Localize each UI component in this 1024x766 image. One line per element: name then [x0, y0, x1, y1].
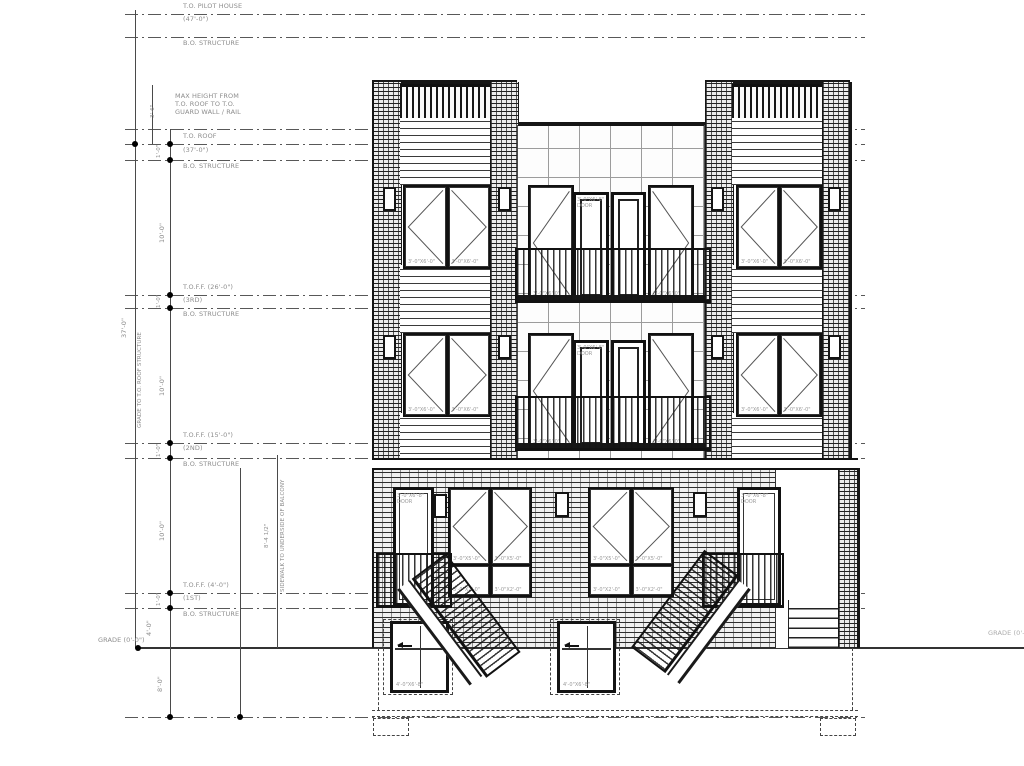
sconce-light: [693, 492, 707, 517]
dim-plenum: 1'-0": [156, 592, 162, 606]
datum-line-bo-footing: [125, 717, 865, 718]
dim-foundation: 4'-0": [145, 620, 153, 636]
basement-door-right: 4'-0"X6'-8": [557, 621, 616, 693]
label-bo-structure: B.O. STRUCTURE: [183, 163, 239, 171]
label-grade-left: GRADE (0'-0"): [98, 637, 145, 645]
door-rail: [562, 648, 611, 650]
casement-left: 3'-0"X5'-0": [590, 489, 630, 564]
casement-right: 3'-0"X6'-0": [781, 335, 821, 415]
dim-guard-height: 3'-6": [150, 104, 156, 118]
sconce-light: [828, 335, 841, 359]
swing-arrow-icon: [398, 645, 412, 647]
door-mullion: [420, 626, 422, 688]
side-steps: [788, 600, 839, 648]
dim-sidewalk-note: SIDEWALK TO UNDERSIDE OF BALCONY: [280, 479, 286, 592]
window-size-label: 3'-0"X5'-0": [636, 556, 663, 562]
foundation-outline: [372, 716, 858, 717]
casement-left: 3'-0"X6'-0": [405, 335, 446, 415]
door-size-label: 4'-0"X6'-8": [563, 682, 590, 688]
balcony-railing-3rd: [515, 248, 711, 303]
label-toff-3rd: T.O.F.F. (26'-0"): [183, 284, 233, 292]
sconce-light: [498, 335, 511, 359]
first-floor-transom-right: 3'-0"X2'-0" 3'-0"X2'-0": [588, 564, 674, 597]
dim-plenum: 1'-0": [156, 443, 162, 457]
window-size-label: 3'-0"X5'-0": [593, 556, 620, 562]
datum-line-bo-structure-roof: [125, 37, 865, 38]
door-size-label: 4'-0"X6'-8": [396, 682, 423, 688]
window-size-label: 3'-0"X2'-0": [593, 587, 620, 593]
window-size-label: 3'-0"X6'-0": [408, 407, 435, 413]
elevation-drawing: T.O. PILOT HOUSE (47'-0") B.O. STRUCTURE…: [0, 0, 1024, 766]
dim-plenum: 1'-0": [156, 294, 162, 308]
dim-marker: [167, 590, 173, 596]
siding-panel: [400, 265, 490, 333]
label-toff-1st-floor: (1ST): [183, 595, 201, 603]
building-edge-right-upper: [849, 82, 851, 468]
brick-pier: [372, 82, 402, 468]
casement-left: 3'-0"X6'-0": [738, 335, 778, 415]
door-word: DOOR: [577, 203, 604, 209]
transom: 3'-0"X2'-0": [492, 566, 531, 595]
dim-marker: [167, 455, 173, 461]
label-toff-2nd-floor: (2ND): [183, 445, 203, 453]
sconce-light: [711, 335, 724, 359]
dim-below-grade: 8'-0": [156, 676, 164, 692]
door-size-label: 3'-0"X6'-8" DOOR: [577, 197, 604, 209]
dim-marker: [167, 440, 173, 446]
door-word: DOOR: [397, 499, 424, 505]
transom: 3'-0"X2'-0": [590, 566, 630, 595]
label-toff-1st: T.O.F.F. (4'-0"): [183, 582, 229, 590]
window-size-label: 3'-0"X6'-0": [452, 407, 479, 413]
foundation-outline: [372, 710, 858, 711]
sconce-light: [828, 187, 841, 211]
casement-left: 3'-0"X6'-0": [405, 187, 446, 267]
foundation-wall-dashed: [378, 648, 379, 710]
sconce-light: [434, 494, 447, 518]
siding-panel: [732, 265, 822, 333]
center-parapet: [517, 122, 705, 126]
casement-right: 3'-0"X6'-0": [449, 187, 490, 267]
dim-line-sidewalk: [277, 455, 278, 648]
window-size-label: 3'-0"X6'-0": [408, 259, 435, 265]
label-to-pilot-house-elev: (47'-0"): [183, 16, 208, 24]
dim-line-overall: [135, 10, 136, 648]
door-word: DOOR: [741, 499, 768, 505]
label-to-roof: T.O. ROOF: [183, 133, 217, 141]
sconce-light: [555, 492, 569, 517]
door-rail: [395, 648, 444, 650]
label-grade-right: GRADE (0'-0"): [988, 630, 1024, 638]
dim-marker: [167, 157, 173, 163]
dim-marker: [167, 141, 173, 147]
tower-window-3rd-right: 3'-0"X6'-0" 3'-0"X6'-0": [736, 185, 822, 269]
dim-marker: [167, 714, 173, 720]
first-floor-window-left: 3'-0"X5'-0" 3'-0"X5'-0": [448, 487, 532, 566]
foundation-wall-dashed: [852, 648, 853, 710]
note-max-height-3: GUARD WALL / RAIL: [175, 109, 241, 117]
swing-arrow-icon: [565, 645, 579, 647]
dim-marker: [135, 645, 141, 651]
dim-floor-height-1: 10'-0": [158, 521, 166, 541]
siding-panel: [400, 118, 490, 185]
casement-right: 3'-0"X5'-0": [633, 489, 673, 564]
transom: 3'-0"X2'-0": [633, 566, 673, 595]
label-bo-structure: B.O. STRUCTURE: [183, 461, 239, 469]
casement-left: 3'-0"X6'-0": [738, 187, 778, 267]
casement-right: 3'-0"X6'-0": [449, 335, 490, 415]
label-bo-structure: B.O. STRUCTURE: [183, 611, 239, 619]
footing-outline-right: [820, 718, 856, 736]
tower-window-3rd-left: 3'-0"X6'-0" 3'-0"X6'-0": [403, 185, 491, 269]
label-toff-3rd-floor: (3RD): [183, 297, 202, 305]
sconce-light: [498, 187, 511, 211]
sconce-light: [383, 335, 396, 359]
dim-line-floors: [170, 129, 171, 717]
door-mullion: [587, 626, 589, 688]
dim-marker: [167, 305, 173, 311]
dim-marker: [167, 605, 173, 611]
window-size-label: 3'-0"X2'-0": [636, 587, 663, 593]
balcony-railing-2nd: [515, 396, 711, 451]
dim-floor-height-2: 10'-0": [158, 376, 166, 396]
footing-outline-left: [373, 718, 409, 736]
dim-grade-to-roof-note: GRADE TO T.O. ROOF STRUCTURE: [137, 332, 143, 428]
window-size-label: 3'-0"X6'-0": [741, 259, 768, 265]
first-floor-window-right: 3'-0"X5'-0" 3'-0"X5'-0": [588, 487, 674, 566]
label-to-pilot-house: T.O. PILOT HOUSE: [183, 3, 242, 11]
ext-line-balcony: [240, 468, 241, 717]
dim-floor-height-3: 10'-0": [158, 223, 166, 243]
label-toff-2nd: T.O.F.F. (15'-0"): [183, 432, 233, 440]
casement-left: 3'-0"X5'-0": [450, 489, 489, 564]
dim-marker: [237, 714, 243, 720]
door-size-label: 3'-0"X6'-8" DOOR: [741, 493, 768, 505]
tower-window-2nd-left: 3'-0"X6'-0" 3'-0"X6'-0": [403, 333, 491, 417]
label-bo-structure: B.O. STRUCTURE: [183, 40, 239, 48]
door-word: DOOR: [577, 351, 604, 357]
dim-marker: [167, 292, 173, 298]
datum-line-pilot-house: [125, 14, 865, 15]
window-size-label: 3'-0"X5'-0": [495, 556, 522, 562]
dim-marker: [132, 141, 138, 147]
window-size-label: 3'-0"X6'-0": [741, 407, 768, 413]
window-size-label: 3'-0"X6'-0": [784, 407, 811, 413]
building-edge-left: [372, 82, 374, 648]
sconce-light: [711, 187, 724, 211]
window-size-label: 3'-0"X6'-0": [452, 259, 479, 265]
brick-pier: [822, 82, 852, 468]
door-size-label: 3'-0"X6'-8" DOOR: [397, 493, 424, 505]
floor-structure-band: [372, 458, 858, 470]
label-to-roof-elev: (37'-0"): [183, 147, 208, 155]
window-size-label: 3'-0"X6'-0": [784, 259, 811, 265]
dim-overall-height: 37'-0": [120, 318, 128, 338]
sconce-light: [383, 187, 396, 211]
building-edge-right-lower: [857, 468, 859, 648]
casement-right: 3'-0"X6'-0": [781, 187, 821, 267]
casement-right: 3'-0"X5'-0": [492, 489, 531, 564]
tower-window-2nd-right: 3'-0"X6'-0" 3'-0"X6'-0": [736, 333, 822, 417]
dim-sidewalk-value: 8'-4 1/2": [264, 523, 270, 548]
window-size-label: 3'-0"X5'-0": [453, 556, 480, 562]
door-size-label: 3'-0"X6'-8" DOOR: [577, 345, 604, 357]
siding-panel: [732, 118, 822, 185]
label-bo-structure: B.O. STRUCTURE: [183, 311, 239, 319]
window-size-label: 3'-0"X2'-0": [495, 587, 522, 593]
dim-plenum: 1'-0": [156, 144, 162, 158]
